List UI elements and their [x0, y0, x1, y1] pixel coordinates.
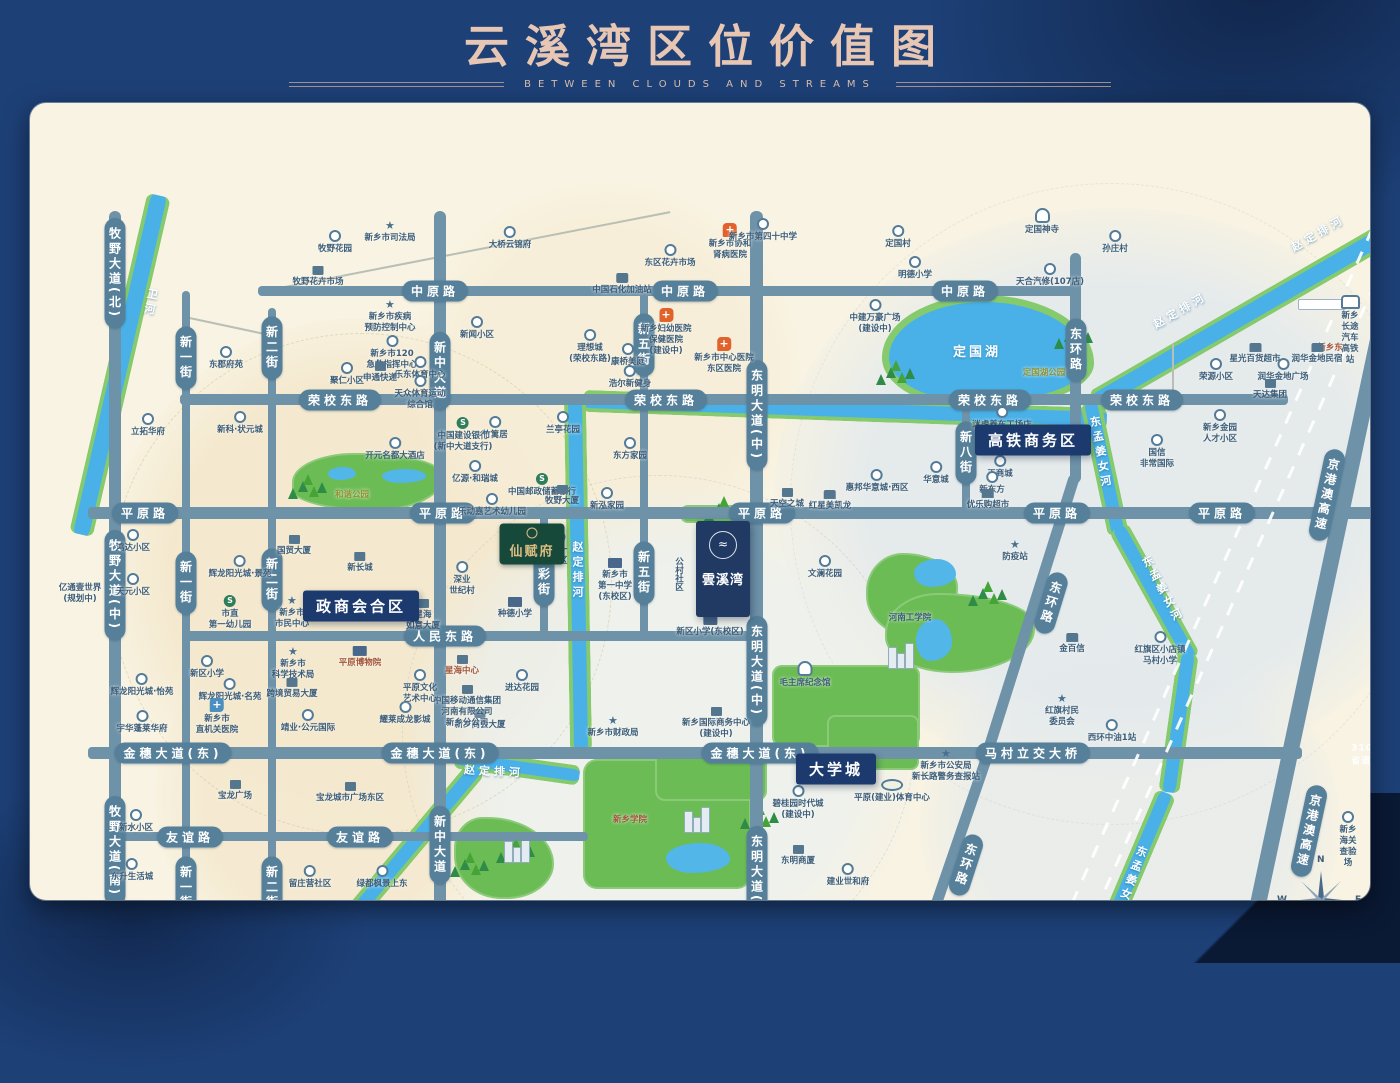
poi-marker: ★红旗村民 委员会: [1045, 693, 1079, 728]
poi-label: 东明商厦: [781, 856, 815, 867]
tree-icon: [740, 818, 750, 829]
district-badge: 高铁商务区: [975, 425, 1091, 456]
poi-marker: 中建万豪广场 (建设中): [849, 299, 900, 335]
poi-label: 新泓家园: [590, 501, 624, 512]
dot-icon: [757, 218, 769, 230]
dot-icon: [624, 437, 636, 449]
poi-label: 新闻小区: [460, 330, 494, 341]
star-icon: ★: [385, 220, 395, 231]
poi-label: 河南工学院: [889, 613, 932, 624]
dot-icon: [930, 461, 942, 473]
poi-marker: 新水小区: [119, 809, 153, 834]
poi-marker: 新闻小区: [460, 316, 494, 341]
bld-icon: [288, 535, 299, 544]
poi-marker: 牧野花卉市场: [292, 266, 343, 288]
poi-marker: 新区小学: [190, 655, 224, 680]
poi-label: 定国湖公园: [1023, 368, 1066, 379]
poi-label: 新乡市 直机关医院: [196, 714, 239, 736]
dot-icon: [201, 655, 213, 667]
estate-badge: 仙赋府: [499, 524, 564, 565]
tree-icon: [968, 595, 978, 606]
poi-label: 荣源小区: [1199, 372, 1233, 383]
dot-icon: [622, 343, 634, 355]
poi-label: 新科·状元城: [217, 425, 263, 436]
poi-marker: 天合汽修(107店): [1016, 263, 1084, 288]
poi-marker: 孙庄村: [1102, 230, 1128, 255]
poi-label: 优乐购超市: [967, 500, 1010, 511]
poi-marker: 理想城 (荣校东路): [569, 329, 611, 365]
bank-icon: S: [536, 473, 548, 485]
poi-label: 种德小学: [498, 609, 532, 620]
star-icon: ★: [1057, 693, 1067, 704]
poi-marker: 天众体育运动 综合馆: [394, 375, 445, 411]
tree-icon: [905, 368, 915, 379]
road-label: 友谊路: [157, 827, 223, 848]
river-label: 赵定排河: [569, 541, 585, 601]
pinb-icon: +: [210, 698, 224, 712]
bld-icon: [710, 707, 721, 716]
school-icon: [508, 597, 522, 607]
bld-icon: [417, 599, 428, 608]
poi-marker: 宝龙广场: [218, 780, 252, 802]
dot-icon: [1342, 811, 1354, 823]
poi-label: 新乡市第四十中学: [729, 232, 797, 243]
dot-icon: [414, 669, 426, 681]
road-label: 平原路: [1024, 503, 1090, 524]
tree-icon: [288, 488, 298, 499]
tree-icon: [719, 496, 729, 507]
poi-marker: 跨境贸易大厦: [266, 678, 317, 700]
dot-icon: [664, 244, 676, 256]
poi-label: 新乡金园 人才小区: [1203, 423, 1237, 445]
poi-marker: 进达花园: [505, 669, 539, 694]
poi-label: 定国神寺: [1025, 225, 1059, 236]
star-icon: ★: [385, 299, 395, 310]
poi-label: 金百信: [1059, 644, 1085, 655]
bld-icon: [781, 488, 792, 497]
building-cluster: [888, 643, 914, 669]
poi-label: 平原(建业)体育中心: [854, 793, 930, 804]
poi-label: 天合汽修(107店): [1016, 277, 1084, 288]
poi-label: 中国移动通信集团 河南有限公司 新乡分公司: [433, 696, 501, 729]
river-label: 赵定排河: [464, 761, 525, 780]
poi-label: 平原博物院: [339, 658, 382, 669]
poi-label: 新乡市财政局: [587, 728, 638, 739]
dot-icon: [1044, 263, 1056, 275]
poi-label: 留庄营社区: [289, 879, 332, 890]
dot-icon: [302, 709, 314, 721]
dot-icon: [127, 529, 139, 541]
poi-marker: 文澜花园: [808, 555, 842, 580]
poi-marker: ★新乡市公安局 新长路警务查报站: [912, 748, 980, 783]
tower-icon: [905, 643, 914, 669]
road: [750, 211, 763, 900]
dot-icon: [329, 230, 341, 242]
dot-icon: [869, 299, 881, 311]
poi-label: 中建万豪广场 (建设中): [849, 313, 900, 335]
poi-marker: 金百信: [1059, 633, 1085, 655]
shop-icon: [1066, 633, 1078, 642]
poi-marker: +新乡妇幼医院 保健医院 (建设中): [640, 308, 691, 357]
poi-marker: 东方家园: [613, 437, 647, 462]
dot-icon: [234, 555, 246, 567]
dot-icon: [489, 416, 501, 428]
dot-icon: [127, 573, 139, 585]
star-icon: ★: [1010, 539, 1020, 550]
poi-label: 碧桂园时代城 (建设中): [772, 799, 823, 821]
poi-marker: 新乡海关查验场: [1337, 811, 1359, 869]
tree-icon: [876, 374, 886, 385]
poi-marker: 天达集团: [1253, 379, 1287, 401]
compass-icon: [1285, 865, 1357, 900]
gas-icon: [616, 273, 628, 283]
road-label: 金穗大道(东): [115, 743, 232, 764]
dot-icon: [1277, 358, 1289, 370]
poi-label: 孙庄村: [1102, 244, 1128, 255]
tree-icon: [303, 474, 313, 485]
poi-label: 牧野花园: [318, 244, 352, 255]
poi-marker: 公村社区: [656, 555, 700, 591]
poi-label: 进达花园: [505, 683, 539, 694]
poi-label: 辉龙阳光城·怡苑: [111, 687, 174, 698]
poi-label: 东升生活城: [111, 872, 154, 883]
poi-label: 建业世和府: [827, 877, 870, 888]
poi-label: 新乡学院: [613, 815, 647, 826]
road-label: 新五街: [634, 542, 655, 605]
road-label: 中原路: [652, 281, 718, 302]
project-name: 雲溪湾: [702, 569, 744, 588]
poi-label: 东郡府苑: [209, 360, 243, 371]
dot-icon: [376, 865, 388, 877]
shop-icon: [1249, 343, 1261, 352]
poi-label: 立拓华府: [131, 427, 165, 438]
dot-icon: [624, 365, 636, 377]
bld-icon: [792, 845, 803, 854]
poi-label: 新乡国际商务中心 (建设中): [682, 718, 750, 740]
shop-icon: [824, 490, 836, 499]
poi-marker: ★新乡市财政局: [587, 715, 638, 739]
poi-label: 新乡海关查验场: [1337, 825, 1359, 869]
hosp-icon: +: [659, 308, 673, 322]
tree-icon: [465, 852, 475, 863]
district-badge: 大学城: [796, 754, 876, 785]
dot-icon: [1151, 434, 1163, 446]
dot-icon: [994, 455, 1006, 467]
poi-marker: 兰亭花园: [546, 411, 580, 436]
poi-label: 竹篱居: [482, 430, 508, 441]
poi-marker: 定国村: [885, 225, 911, 250]
dot-icon: [136, 710, 148, 722]
poi-label: 天空之城: [770, 499, 804, 510]
road-label: 友谊路: [327, 827, 393, 848]
poi-label: 牧野花卉市场: [292, 277, 343, 288]
poi-label: 大桥云锦府: [489, 240, 532, 251]
poi-marker: 辉龙阳光城·景苑: [209, 555, 272, 580]
tower-icon: [693, 817, 701, 833]
poi-label: 理想城 (荣校东路): [569, 343, 611, 365]
bld-icon: [556, 485, 567, 494]
poi-marker: 国贸大厦: [277, 535, 311, 557]
poi-marker: 天元小区: [116, 573, 150, 598]
dot-icon: [341, 362, 353, 374]
dot-icon: [304, 865, 316, 877]
poi-label: 宝龙城市广场东区: [316, 793, 384, 804]
poi-label: 新乡妇幼医院 保健医院 (建设中): [640, 324, 691, 357]
poi-label: 国贸大厦: [277, 546, 311, 557]
poi-label: 惠邦华意城·西区: [846, 483, 909, 494]
compass-e-label: E: [1355, 895, 1361, 900]
poi-marker: 定国湖: [953, 343, 1001, 362]
poi-marker: 竹篱居: [482, 416, 508, 441]
dot-icon: [386, 335, 398, 347]
bld-icon: [354, 552, 365, 561]
road-label: 荣校东路: [625, 390, 707, 411]
tree-icon: [450, 866, 460, 877]
road-label: 金穗大道(东): [382, 743, 499, 764]
dot-icon: [220, 346, 232, 358]
poi-marker: 平原文化 艺术中心: [403, 669, 437, 705]
poi-marker: 绿都枫景上东: [356, 865, 407, 890]
poi-marker: 新乡长途汽车 高铁站: [1340, 295, 1360, 366]
shop-icon: [1311, 343, 1323, 352]
dot-icon: [136, 673, 148, 685]
road: [434, 211, 446, 900]
poi-label: 浩尔新健身: [609, 379, 652, 390]
road-label: 马村立交大桥: [976, 743, 1090, 764]
poi-marker: 留庄营社区: [289, 865, 332, 890]
poi-label: 亿源·和瑞城: [452, 474, 498, 485]
poi-marker: ★新乡市司法局: [364, 220, 415, 244]
road-label: 310省道: [1351, 744, 1370, 767]
dot-icon: [224, 678, 236, 690]
poi-label: 防疫站: [1002, 552, 1028, 563]
poi-label: 靖业·公元国际: [281, 723, 335, 734]
poi-label: 和谐公园: [335, 490, 369, 501]
poi-label: 东方家园: [613, 451, 647, 462]
poi-label: 亿通壹世界 (规划中): [59, 583, 102, 605]
bank-icon: S: [457, 417, 469, 429]
poi-marker: 新乡国际商务中心 (建设中): [682, 707, 750, 740]
dot-icon: [486, 493, 498, 505]
road-label: 新一街: [176, 327, 197, 390]
temple-icon: [797, 661, 812, 676]
poi-marker: 大桥云锦府: [489, 226, 532, 251]
poi-label: 新水小区: [119, 823, 153, 834]
dot-icon: [1154, 631, 1166, 643]
poi-label: 宝龙广场: [218, 791, 252, 802]
decor-line: [896, 82, 1111, 87]
poi-marker: ★新乡市 科学技术局: [272, 646, 315, 681]
poi-marker: 定国神寺: [1025, 208, 1059, 236]
decor-line: [289, 82, 504, 87]
poi-marker: 天空之城: [770, 488, 804, 510]
tower-icon: [504, 841, 513, 863]
poi-marker: 牧野大厦: [545, 485, 579, 507]
dot-icon: [1210, 358, 1222, 370]
poi-marker: 红旗区小店镇 马村小学: [1134, 631, 1185, 667]
poi-marker: 河南工学院: [889, 611, 932, 624]
road-label: 东环路: [1066, 319, 1087, 382]
poi-label: 牧野大厦: [545, 496, 579, 507]
poi-label: 辉龙阳光城·景苑: [209, 569, 272, 580]
dot-icon: [819, 555, 831, 567]
dot-icon: [234, 411, 246, 423]
poi-marker: ★新乡市疾病 预防控制中心: [364, 299, 415, 334]
poi-label: 绿都枫景上东: [356, 879, 407, 890]
project-marker: ≈雲溪湾: [696, 521, 750, 617]
poi-marker: 西环中油1站: [1088, 719, 1136, 744]
dot-icon: [414, 375, 426, 387]
poi-marker: 乐动嘉艺术幼儿园: [458, 493, 526, 518]
road-label: 平原路: [112, 503, 178, 524]
road-label: 荣校东路: [1101, 390, 1183, 411]
poi-marker: 定国湖公园: [1023, 366, 1066, 379]
compass-n-label: N: [1317, 855, 1325, 865]
tree-icon: [479, 860, 489, 871]
dot-icon: [871, 469, 883, 481]
dot-icon: [792, 785, 804, 797]
road-label: 新一街: [176, 552, 197, 615]
road-label: 新一街: [176, 857, 197, 901]
stad-icon: [881, 779, 903, 791]
bank-icon: S: [224, 595, 236, 607]
poi-marker: 惠邦华意城·西区: [846, 469, 909, 494]
school-icon: [608, 558, 622, 568]
project-logo-icon: ≈: [709, 531, 737, 559]
tree-icon: [1054, 338, 1064, 349]
district-badge: 政商会合区: [303, 591, 419, 622]
dot-icon: [909, 256, 921, 268]
poi-marker: ★防疫站: [1002, 539, 1028, 563]
poi-label: 西环中油1站: [1088, 733, 1136, 744]
star-icon: ★: [941, 748, 951, 759]
road-label: 新二街: [262, 857, 283, 901]
poi-marker: +新乡市中心医院 东区医院: [694, 337, 754, 375]
poi-label: 新区小学(东校区): [676, 627, 743, 638]
poi-label: 定国村: [885, 239, 911, 250]
poi-marker: 东郡府苑: [209, 346, 243, 371]
poi-marker: 中国移动通信集团 河南有限公司 新乡分公司: [433, 685, 501, 729]
poi-marker: 浩尔新健身: [609, 365, 652, 390]
poi-label: 鸿达小区: [116, 543, 150, 554]
tower-icon: [513, 847, 521, 863]
building-cluster: [684, 807, 710, 833]
poi-marker: 东明商厦: [781, 845, 815, 867]
poi-label: 东区花卉市场: [644, 258, 695, 269]
school-icon: [353, 646, 367, 656]
dot-icon: [469, 460, 481, 472]
poi-label: 新乡长途汽车 高铁站: [1340, 311, 1360, 366]
bld-icon: [1264, 379, 1275, 388]
poi-marker: 新乡学院: [613, 813, 647, 826]
tower-icon: [888, 647, 897, 669]
poi-label: 国信 非常国际: [1140, 448, 1174, 470]
poi-marker: 新科·状元城: [217, 411, 263, 436]
train-icon: [1341, 295, 1360, 309]
poi-label: 申通快递: [363, 373, 397, 384]
dot-icon: [414, 356, 426, 368]
tower-icon: [701, 807, 710, 833]
poi-label: 宇华蓬莱华府: [116, 724, 167, 735]
title-block: 云溪湾区位价值图 BETWEEN CLOUDS AND STREAMS: [0, 10, 1400, 90]
poi-label: 文澜花园: [808, 569, 842, 580]
poi-label: 星海中心: [445, 666, 479, 677]
poi-marker: 新乡市 第一中学 (东校区): [598, 558, 632, 603]
poi-marker: 鸿达小区: [116, 529, 150, 554]
poi-marker: 东区花卉市场: [644, 244, 695, 269]
poi-marker: 申通快递: [363, 362, 397, 384]
poi-label: 兰亭花园: [546, 425, 580, 436]
poi-marker: 荣源小区: [1199, 358, 1233, 383]
poi-label: 中国石化加油站: [592, 285, 652, 296]
dot-icon: [996, 406, 1008, 418]
tree-icon: [997, 589, 1007, 600]
poi-marker: +新乡市 直机关医院: [196, 698, 239, 736]
dot-icon: [601, 487, 613, 499]
road-label: 平原路: [1189, 503, 1255, 524]
dot-icon: [504, 226, 516, 238]
road-label: 荣校东路: [299, 390, 381, 411]
dot-icon: [1214, 409, 1226, 421]
compass-w-label: W: [1277, 895, 1287, 900]
poi-marker: 种德小学: [498, 597, 532, 620]
poi-label: 新乡市疾病 预防控制中心: [364, 312, 415, 334]
poi-label: 耀莱成龙影城: [379, 715, 430, 726]
road-label: 东明大道(南): [747, 826, 768, 900]
poi-marker: 新区小学(东校区): [676, 615, 743, 638]
dot-icon: [130, 809, 142, 821]
poi-marker: 平原博物院: [339, 646, 382, 669]
poi-label: 天达集团: [1253, 390, 1287, 401]
bld-icon: [286, 678, 297, 687]
poi-marker: 亿通壹世界 (规划中): [59, 581, 102, 605]
poi-label: 毛主席纪念馆: [779, 678, 830, 689]
poi-marker: S市直 第一幼儿园: [209, 595, 252, 631]
tower-icon: [897, 653, 905, 669]
poi-marker: 牧野花园: [318, 230, 352, 255]
dot-icon: [986, 471, 998, 483]
poi-marker: 立拓华府: [131, 413, 165, 438]
poi-marker: 聚仁小区: [330, 362, 364, 387]
bld-icon: [456, 655, 467, 664]
subtitle-row: BETWEEN CLOUDS AND STREAMS: [0, 79, 1400, 90]
poi-label: 公村社区: [672, 557, 683, 591]
poi-marker: 碧桂园时代城 (建设中): [772, 785, 823, 821]
hosp-icon: +: [717, 337, 731, 351]
poi-label: 红旗区小店镇 马村小学: [1134, 645, 1185, 667]
compass-rose: N E S W: [1285, 865, 1357, 900]
poi-label: 深业 世纪村: [449, 575, 475, 597]
poi-label: 红星美凯龙: [809, 501, 852, 512]
poi-label: 天众体育运动 综合馆: [394, 389, 445, 411]
poi-marker: 新乡金园 人才小区: [1203, 409, 1237, 445]
star-icon: ★: [288, 646, 298, 657]
poi-marker: 和谐公园: [335, 488, 369, 501]
dot-icon: [892, 225, 904, 237]
poi-marker: 中国石化加油站: [592, 273, 652, 296]
road-label: 中原路: [932, 281, 998, 302]
poi-label: 平原文化 艺术中心: [403, 683, 437, 705]
poi-label: 华意城: [923, 475, 949, 486]
poi-label: 天元小区: [116, 587, 150, 598]
poi-marker: 辉龙阳光城·怡苑: [111, 673, 174, 698]
dot-icon: [1106, 719, 1118, 731]
poi-marker: 明德小学: [898, 256, 932, 281]
bld-icon: [461, 685, 472, 694]
bld-icon: [374, 362, 385, 371]
page-title: 云溪湾区位价值图: [0, 10, 1400, 75]
poi-marker: 建业世和府: [827, 863, 870, 888]
